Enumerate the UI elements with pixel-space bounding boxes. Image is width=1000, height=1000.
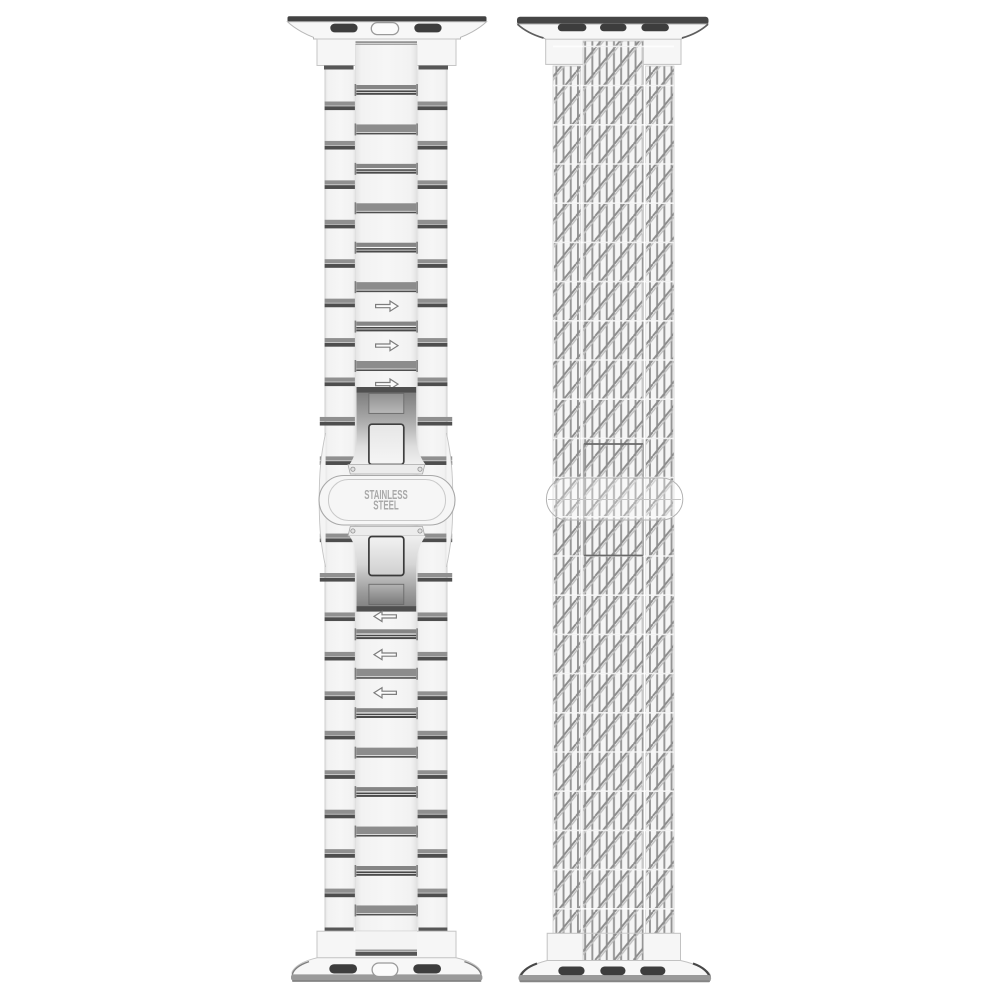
svg-text:STEEL: STEEL: [373, 498, 399, 512]
